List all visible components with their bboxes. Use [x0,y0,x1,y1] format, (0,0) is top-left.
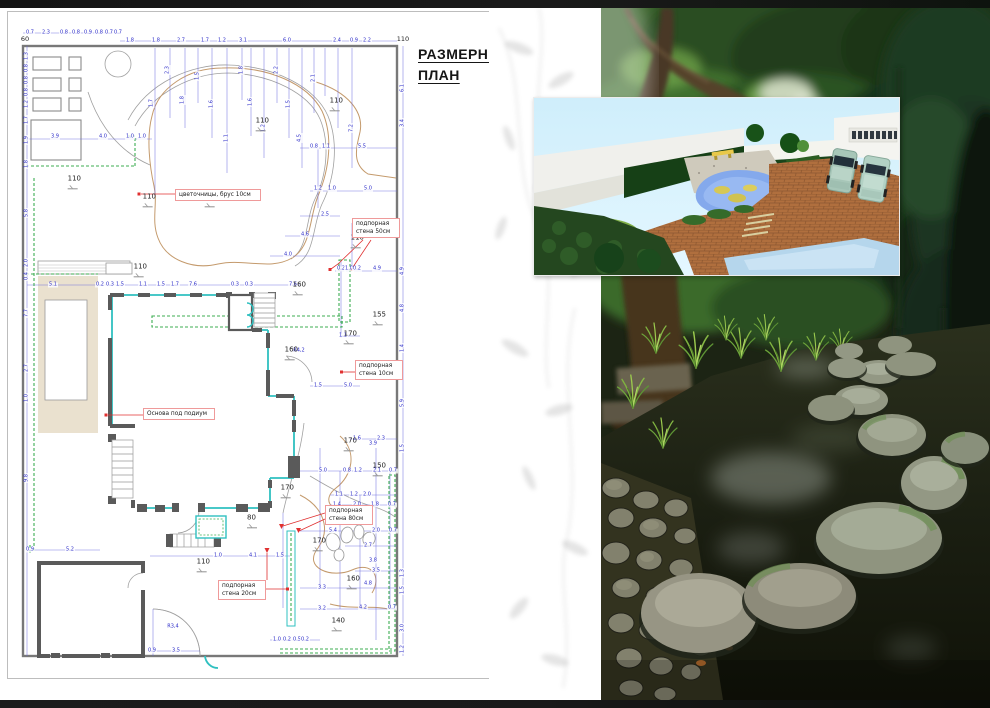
top-border-bar [0,0,990,8]
landscape-design-page: 0.72.30.80.80.90.80.70.71.81.82.71.71.23… [0,0,990,708]
bottom-border-bar [0,700,990,708]
render-3d-inset [533,97,900,276]
plan-page: 0.72.30.80.80.90.80.70.71.81.82.71.71.23… [0,8,495,700]
plan-drawing [0,8,495,700]
